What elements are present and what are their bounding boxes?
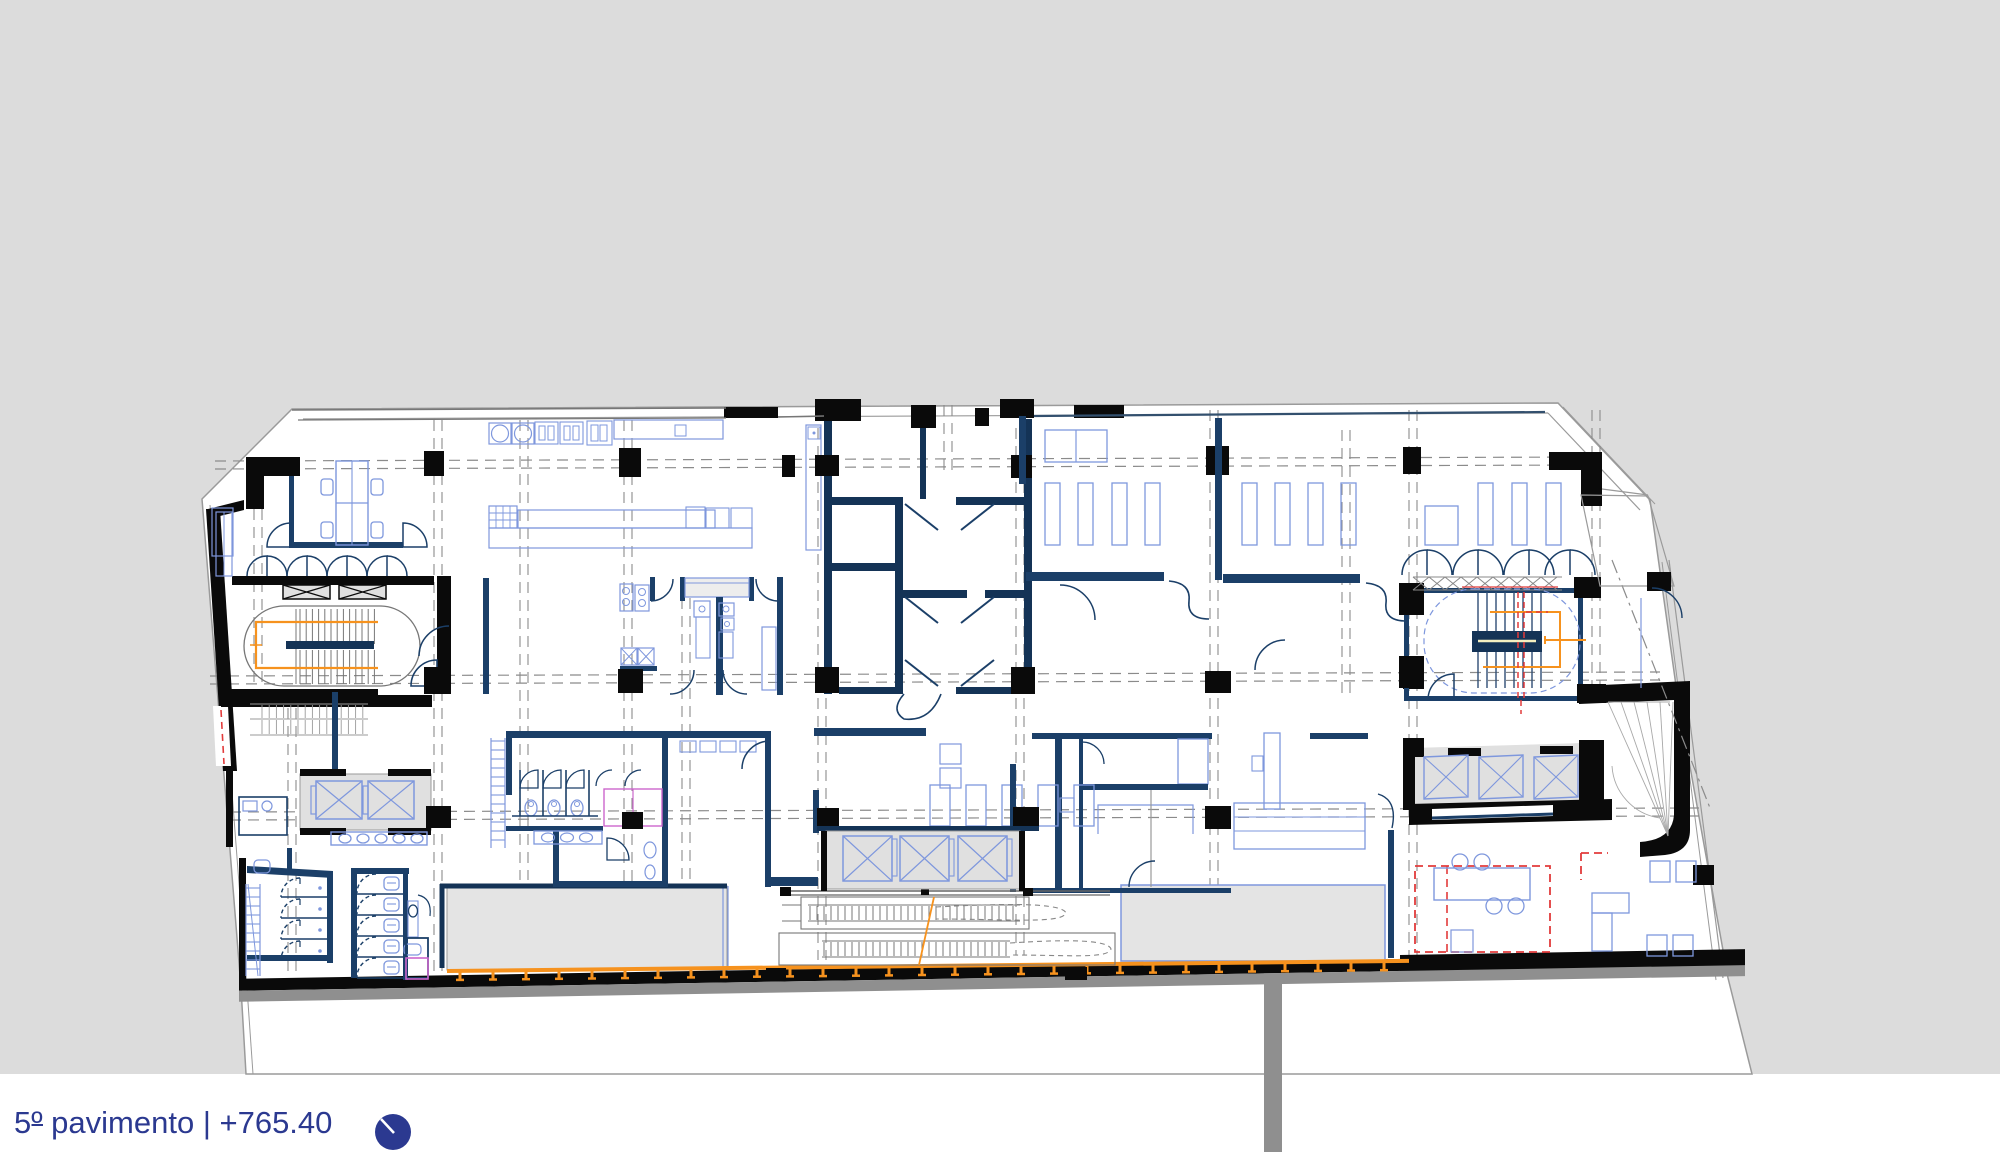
svg-text:5º pavimento | +765.40: 5º pavimento | +765.40 <box>14 1105 332 1140</box>
